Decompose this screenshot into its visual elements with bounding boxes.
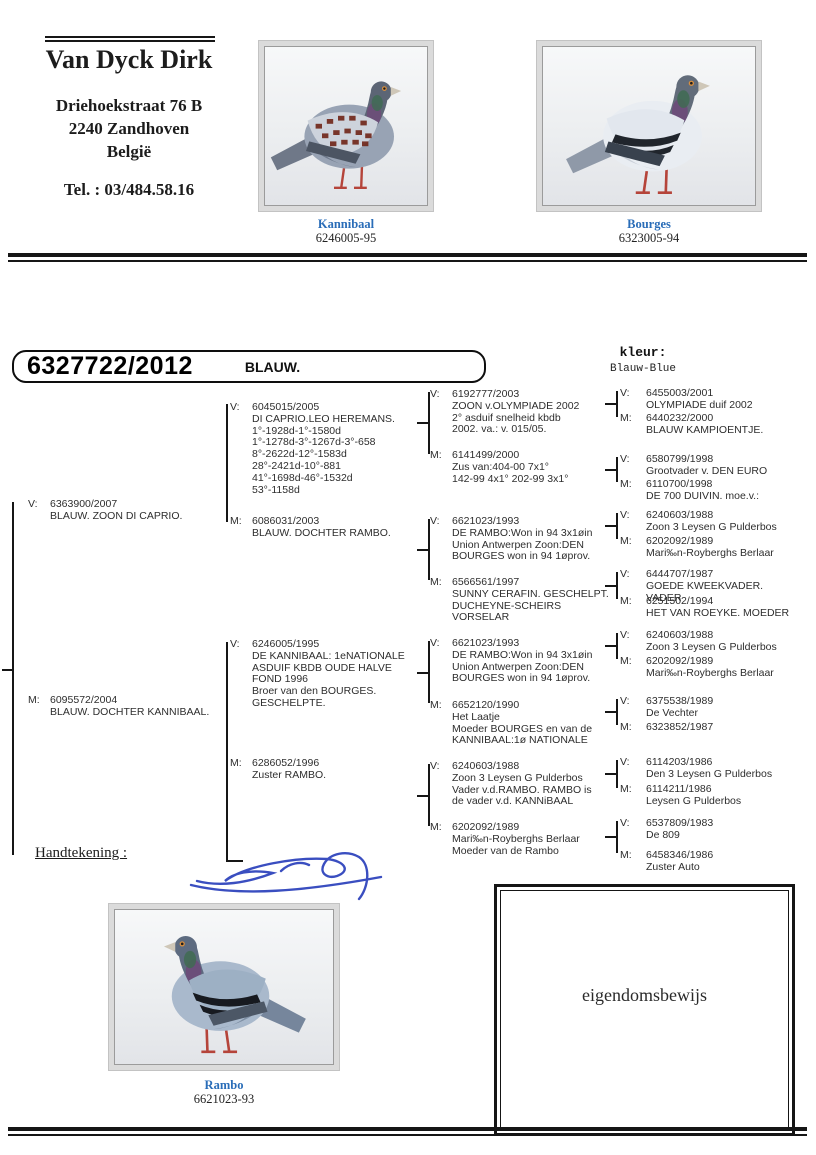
pigeon-illustration-bourges (554, 55, 744, 205)
kleur-value: Blauw-Blue (580, 363, 706, 375)
header-double-rule-top (45, 36, 215, 38)
pigeon-ring: 6246005-95 (258, 231, 434, 245)
pedigree-line (616, 391, 618, 417)
address-line-1: Driehoekstraat 76 B (30, 94, 228, 117)
sex-label: V: (430, 761, 446, 808)
pigeon-illustration-kannibaal (266, 57, 426, 205)
entry-description: Het Laatje Moeder BOURGES en van de KANN… (452, 712, 592, 747)
sex-label: V: (620, 510, 640, 534)
address-line-3: België (30, 140, 228, 163)
pedigree-entry: V: 6045015/2005 DI CAPRIO.LEO HEREMANS. … (230, 402, 420, 496)
pigeon-ring: 6323005-94 (536, 231, 762, 245)
sex-label: M: (230, 758, 246, 782)
top-separator-thick (8, 253, 807, 257)
pedigree-entry: M: 6202092/1989 Mari‰n-Royberghs Berlaar… (430, 822, 610, 857)
top-separator-thin (8, 260, 807, 262)
entry-description: DE RAMBO:Won in 94 3x1øin Union Antwerpe… (452, 650, 592, 685)
pedigree-entry: V: 6240603/1988 Zoon 3 Leysen G Pulderbo… (620, 630, 798, 654)
ownership-box-inner: eigendomsbewijs (500, 890, 789, 1130)
fancier-address: Driehoekstraat 76 B 2240 Zandhoven Belgi… (30, 94, 228, 163)
pedigree-entry: M: 6652120/1990 Het Laatje Moeder BOURGE… (430, 700, 610, 747)
entry-description: Den 3 Leysen G Pulderbos (646, 769, 772, 781)
pedigree-entry: M: 6114211/1986 Leysen G Pulderbos (620, 784, 798, 808)
pedigree-line (616, 633, 618, 659)
photo-frame-kannibaal (258, 40, 434, 212)
pedigree-entry: M: 6141499/2000 Zus van:404-00 7x1° 142-… (430, 450, 610, 485)
sex-label: M: (620, 596, 640, 620)
entry-description: Zuster RAMBO. (252, 770, 326, 782)
signature-scrawl (185, 843, 390, 905)
sex-label: V: (230, 402, 246, 496)
pedigree-entry: V: 6375538/1989 De Vechter (620, 696, 798, 720)
pigeon-name: Rambo (108, 1078, 340, 1092)
header-double-rule-bottom (45, 40, 215, 42)
sex-label: V: (430, 638, 446, 685)
pedigree-entry: V: 6114203/1986 Den 3 Leysen G Pulderbos (620, 757, 798, 781)
entry-description: DE KANNIBAAL: 1eNATIONALE ASDUIF KBDB OU… (252, 651, 405, 710)
sex-label: M: (430, 450, 446, 485)
pedigree-line (417, 795, 428, 797)
pedigree-certificate-page: Van Dyck Dirk Driehoekstraat 76 B 2240 Z… (0, 0, 816, 1155)
sex-label: V: (430, 389, 446, 436)
pedigree-entry: M: 6110700/1998 DE 700 DUIVIN. moe.v.: (620, 479, 798, 503)
entry-description: Zuster Auto (646, 862, 713, 874)
entry-description: Leysen G Pulderbos (646, 796, 741, 808)
pedigree-line (417, 549, 428, 551)
pedigree-entry: V: 6240603/1988 Zoon 3 Leysen G Pulderbo… (620, 510, 798, 534)
fancier-phone: Tel. : 03/484.58.16 (30, 180, 228, 200)
ownership-label: eigendomsbewijs (582, 985, 707, 1006)
pedigree-entry: V: 6246005/1995 DE KANNIBAAL: 1eNATIONAL… (230, 639, 420, 710)
sex-label: M: (620, 413, 640, 437)
sex-label: V: (620, 630, 640, 654)
sex-label: M: (620, 536, 640, 560)
fancier-name: Van Dyck Dirk (38, 45, 220, 75)
photo-kannibaal (264, 46, 428, 206)
sex-label: M: (620, 656, 640, 680)
entry-description: BLAUW. DOCHTER RAMBO. (252, 528, 391, 540)
pedigree-entry: V: 6455003/2001 OLYMPIADE duif 2002 (620, 388, 798, 412)
caption-rambo: Rambo 6621023-93 (108, 1078, 340, 1106)
photo-frame-rambo (108, 903, 340, 1071)
entry-description: Grootvader v. DEN EURO (646, 466, 767, 478)
bottom-separator-thick (8, 1127, 807, 1131)
sex-label: V: (620, 696, 640, 720)
sex-label: M: (230, 516, 246, 540)
pigeon-illustration-rambo (126, 916, 322, 1064)
entry-description: Mari‰n-Royberghs Berlaar Moeder van de R… (452, 834, 580, 858)
pedigree-entry: M: 6086031/2003 BLAUW. DOCHTER RAMBO. (230, 516, 420, 540)
sex-label: V: (620, 818, 640, 842)
subject-ring-number: 6327722/2012 (27, 352, 193, 381)
pedigree-line (616, 457, 618, 482)
entry-description: Zoon 3 Leysen G Pulderbos (646, 642, 777, 654)
entry-description: Mari‰n-Royberghs Berlaar (646, 668, 774, 680)
pedigree-line (12, 502, 14, 855)
entry-description: OLYMPIADE duif 2002 (646, 400, 753, 412)
sex-label: V: (620, 454, 640, 478)
pedigree-entry: V: 6621023/1993 DE RAMBO:Won in 94 3x1øi… (430, 638, 610, 685)
address-line-2: 2240 Zandhoven (30, 117, 228, 140)
entry-description: DE RAMBO:Won in 94 3x1øin Union Antwerpe… (452, 528, 592, 563)
sex-label: M: (430, 700, 446, 747)
pedigree-entry: M: 6440232/2000 BLAUW KAMPIOENTJE. (620, 413, 798, 437)
sex-label: M: (620, 850, 640, 874)
subject-color: BLAUW. (245, 359, 300, 375)
sex-label: M: (430, 822, 446, 857)
pigeon-name: Kannibaal (258, 217, 434, 231)
sex-label: M: (620, 722, 640, 734)
sex-label: V: (620, 388, 640, 412)
pedigree-line (2, 669, 13, 671)
pedigree-entry: V: 6240603/1988 Zoon 3 Leysen G Pulderbo… (430, 761, 610, 808)
subject-ring-box: 6327722/2012 BLAUW. (12, 350, 486, 383)
pedigree-entry-sire: V: 6363900/2007 BLAUW. ZOON DI CAPRIO. (28, 499, 228, 523)
entry-description: ZOON v.OLYMPIADE 2002 2° asduif snelheid… (452, 401, 579, 436)
pedigree-entry: M: 6323852/1987 (620, 722, 798, 734)
pedigree-line (616, 821, 618, 853)
entry-description: HET VAN ROEYKE. MOEDER (646, 608, 789, 620)
sex-label: M: (430, 577, 446, 624)
caption-kannibaal: Kannibaal 6246005-95 (258, 217, 434, 245)
entry-description: SUNNY CERAFIN. GESCHELPT. DUCHEYNE-SCHEI… (452, 589, 610, 624)
bottom-separator-thin (8, 1134, 807, 1136)
entry-description: Mari‰n-Royberghs Berlaar (646, 548, 774, 560)
pedigree-entry: M: 6286052/1996 Zuster RAMBO. (230, 758, 420, 782)
pedigree-entry: M: 6251502/1994 HET VAN ROEYKE. MOEDER (620, 596, 798, 620)
pedigree-entry: V: 6621023/1993 DE RAMBO:Won in 94 3x1øi… (430, 516, 610, 563)
entry-description: BLAUW KAMPIOENTJE. (646, 425, 763, 437)
entry-description: BLAUW. ZOON DI CAPRIO. (50, 511, 182, 523)
pedigree-entry: V: 6537809/1983 De 809 (620, 818, 798, 842)
pedigree-entry: M: 6202092/1989 Mari‰n-Royberghs Berlaar (620, 656, 798, 680)
sex-label: M: (620, 479, 640, 503)
sex-label: V: (620, 757, 640, 781)
entry-description: Zoon 3 Leysen G Pulderbos (646, 522, 777, 534)
ring-number: 6323852/1987 (646, 722, 713, 734)
pedigree-line (616, 572, 618, 599)
pedigree-entry-dam: M: 6095572/2004 BLAUW. DOCHTER KANNIBAAL… (28, 695, 228, 719)
sex-label: M: (620, 784, 640, 808)
caption-bourges: Bourges 6323005-94 (536, 217, 762, 245)
entry-description: De 809 (646, 830, 713, 842)
pedigree-line (616, 699, 618, 725)
sex-label: V: (28, 499, 44, 523)
entry-description: Zus van:404-00 7x1° 142-99 4x1° 202-99 3… (452, 462, 568, 486)
photo-bourges (542, 46, 756, 206)
pigeon-ring: 6621023-93 (108, 1092, 340, 1106)
pedigree-entry: V: 6192777/2003 ZOON v.OLYMPIADE 2002 2°… (430, 389, 610, 436)
pedigree-entry: V: 6580799/1998 Grootvader v. DEN EURO (620, 454, 798, 478)
sex-label: V: (230, 639, 246, 710)
pedigree-entry: M: 6202092/1989 Mari‰n-Royberghs Berlaar (620, 536, 798, 560)
entry-description: De Vechter (646, 708, 713, 720)
entry-description: Zoon 3 Leysen G Pulderbos Vader v.d.RAMB… (452, 773, 592, 808)
entry-description: BLAUW. DOCHTER KANNIBAAL. (50, 707, 209, 719)
photo-rambo (114, 909, 334, 1065)
pedigree-line (226, 642, 228, 862)
pedigree-line (616, 760, 618, 788)
pedigree-line (616, 513, 618, 539)
entry-description: DI CAPRIO.LEO HEREMANS. 1°-1928d-1°-1580… (252, 414, 395, 497)
sex-label: V: (430, 516, 446, 563)
entry-description: DE 700 DUIVIN. moe.v.: (646, 491, 759, 503)
kleur-label: kleur: (588, 345, 698, 360)
pedigree-entry: M: 6458346/1986 Zuster Auto (620, 850, 798, 874)
pedigree-entry: M: 6566561/1997 SUNNY CERAFIN. GESCHELPT… (430, 577, 610, 624)
sex-label: M: (28, 695, 44, 719)
ownership-box: eigendomsbewijs (494, 884, 795, 1136)
pigeon-name: Bourges (536, 217, 762, 231)
signature-label: Handtekening : (35, 845, 127, 862)
photo-frame-bourges (536, 40, 762, 212)
